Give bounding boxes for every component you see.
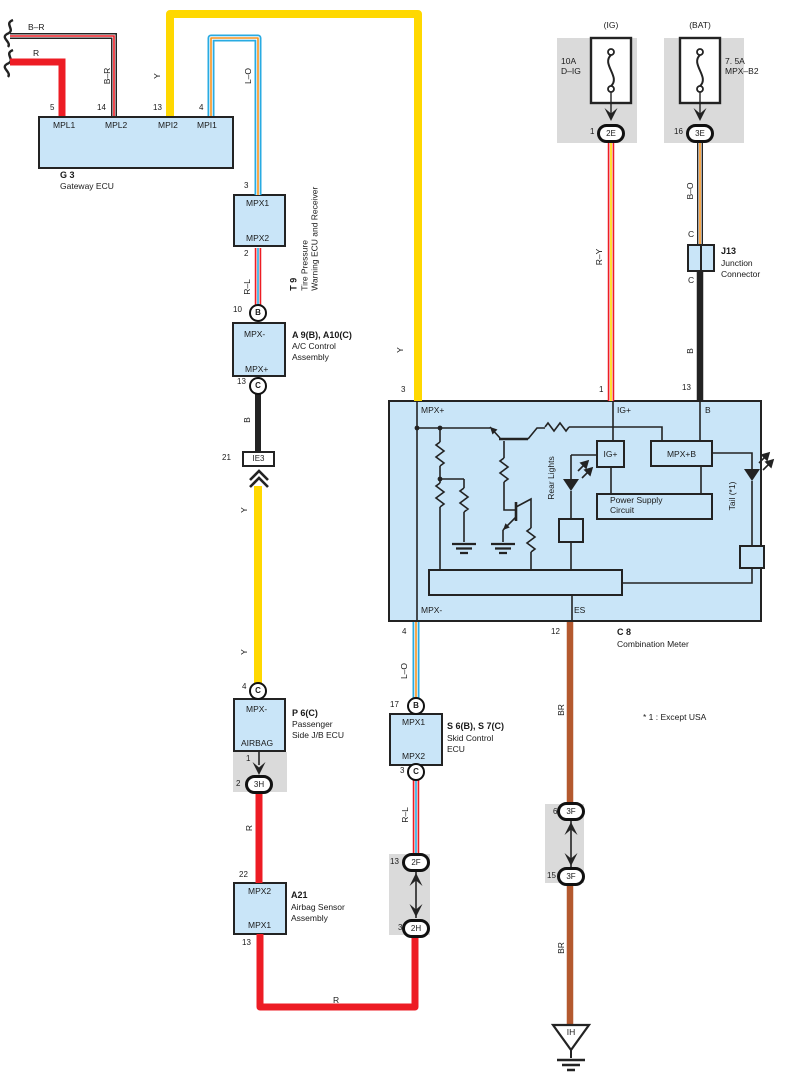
ac-desc-line2: Assembly: [292, 352, 329, 362]
fuse-ig-connector-2e: 2E: [597, 124, 625, 143]
wire-label-br-2: BR: [555, 908, 567, 988]
t9-pin3-number: 3: [244, 181, 248, 191]
fuse-bat-name: MPX–B2: [725, 66, 759, 76]
fuse-bat-header: (BAT): [675, 20, 725, 30]
t9-label-block: T 9 Tire Pressure Warning ECU and Receiv…: [288, 161, 320, 291]
wire-label-l-o-1: L–O: [242, 36, 254, 116]
wire-label-y-1: Y: [151, 36, 163, 116]
schematic-svg: [0, 0, 789, 1078]
g3-pin-mpl1: MPL1: [53, 120, 75, 130]
a21-id: A21: [291, 890, 308, 900]
g3-id: G 3: [60, 170, 75, 180]
p6-pin-mpx-minus: MPX-: [246, 704, 267, 714]
fuse-ig-pin-number: 1: [590, 127, 594, 137]
ie3-pin-number: 21: [222, 453, 231, 463]
a21-pin-mpx2: MPX2: [248, 886, 271, 896]
wire-label-r-bottom: R: [333, 995, 339, 1005]
c8-ig-box: IG+: [596, 440, 625, 468]
wire-label-r-l-1: R–L: [241, 247, 253, 327]
wire-label-l-o-2: L–O: [398, 631, 410, 711]
connector-2f: 2F: [402, 853, 430, 872]
t9-pin-mpx1: MPX1: [246, 198, 269, 208]
fuse-ig-rating: 10A: [561, 56, 576, 66]
c8-mpxb-box: MPX+B: [650, 440, 713, 467]
offpage-squiggles: [5, 20, 13, 77]
ac-pin-mpx-plus: MPX+: [245, 364, 268, 374]
fuse-ig-header: (IG): [586, 20, 636, 30]
connector-3f-bot: 3F: [557, 867, 585, 886]
j13-desc-line2: Connector: [721, 269, 760, 279]
wire-label-br-1: BR: [555, 670, 567, 750]
c8-pin-b: B: [705, 405, 711, 415]
g3-pin-mpi2: MPI2: [158, 120, 178, 130]
wire-label-r-y: R–Y: [593, 217, 605, 297]
wire-label-b-o: B–O: [684, 151, 696, 231]
wire-label-b-r-top: B–R: [28, 22, 45, 32]
a21-pin22-number: 22: [239, 870, 248, 880]
j13-c-bot: C: [688, 275, 694, 285]
wire-label-b-r-vert: B–R: [101, 36, 113, 116]
wiring-diagram-page: 5 14 13 4 MPL1 MPL2 MPI2 MPI1 G 3 Gatewa…: [0, 0, 789, 1078]
wire-label-r-vert: R: [243, 788, 255, 868]
fuse-bat-rating: 7. 5A: [725, 56, 745, 66]
p6-desc-line1: Passenger: [292, 719, 333, 729]
fuse-bat-connector-3e: 3E: [686, 124, 714, 143]
j13-desc-line1: Junction: [721, 258, 753, 268]
p6-jb-pin2-number: 2: [236, 779, 240, 789]
conn-3f-3f-arrows: [565, 821, 578, 867]
c8-id: C 8: [617, 627, 631, 637]
conn-3f-bot-number: 15: [547, 871, 556, 881]
conn-2f-number: 13: [390, 857, 399, 867]
wire-label-y-4: Y: [394, 310, 406, 390]
c8-tail-label: Tail (*1): [726, 456, 738, 536]
fuse-ig-symbol: [591, 38, 631, 121]
c8-pin1-number: 1: [599, 385, 603, 395]
c8-desc: Combination Meter: [617, 639, 689, 649]
fuse-ig-name: D–IG: [561, 66, 581, 76]
p6-connector-c: C: [249, 682, 267, 700]
c8-psc-line2: Circuit: [610, 505, 634, 515]
wire-label-r-top: R: [33, 48, 39, 58]
g3-desc: Gateway ECU: [60, 181, 114, 191]
a21-pin13-number: 13: [242, 938, 251, 948]
c8-driver-block: [428, 569, 623, 596]
wire-label-y-2: Y: [238, 470, 250, 550]
p6-jb-arrow: [253, 752, 266, 775]
skid-desc-line1: Skid Control: [447, 733, 493, 743]
t9-desc-line2: Warning ECU and Receiver: [309, 161, 320, 291]
g3-pin-mpi1: MPI1: [197, 120, 217, 130]
ie3-chevron: [250, 471, 268, 487]
wire-label-b-2: B: [684, 311, 696, 391]
j13-id: J13: [721, 246, 736, 256]
g3-pin4-number: 4: [199, 103, 203, 113]
fuse-bat-pin-number: 16: [674, 127, 683, 137]
g3-pin5-number: 5: [50, 103, 54, 113]
j13-divider: [700, 246, 702, 270]
c8-pin-ig: IG+: [617, 405, 631, 415]
connector-2h: 2H: [402, 919, 430, 938]
a21-desc-line1: Airbag Sensor: [291, 902, 345, 912]
c8-rear-lights-block: [558, 518, 584, 543]
p6-id: P 6(C): [292, 708, 318, 718]
g3-pin-mpl2: MPL2: [105, 120, 127, 130]
p6-jb-pin1-number: 1: [246, 754, 250, 764]
a21-desc-line2: Assembly: [291, 913, 328, 923]
skid-pin-mpx1: MPX1: [402, 717, 425, 727]
c8-pin-mpx-plus: MPX+: [421, 405, 444, 415]
note-except-usa: * 1 : Except USA: [643, 712, 706, 722]
t9-desc-line1: Tire Pressure: [299, 161, 310, 291]
connector-3f-top: 3F: [557, 802, 585, 821]
skid-pin-mpx2: MPX2: [402, 751, 425, 761]
c8-psc-line1: Power Supply: [610, 495, 662, 505]
wire-label-r-l-2: R–L: [399, 775, 411, 855]
t9-pin-mpx2: MPX2: [246, 233, 269, 243]
conn-2f-2h-arrows: [410, 872, 423, 918]
ac-desc-line1: A/C Control: [292, 341, 336, 351]
wire-label-y-3: Y: [238, 612, 250, 692]
c8-power-supply-box: Power Supply Circuit: [596, 493, 713, 520]
skid-desc-line2: ECU: [447, 744, 465, 754]
c8-pin-es: ES: [574, 605, 585, 615]
t9-id: T 9: [288, 161, 299, 291]
c8-pin-mpx-minus: MPX-: [421, 605, 442, 615]
fuse-bat-symbol: [680, 38, 720, 121]
c8-pin12-number: 12: [551, 627, 560, 637]
p6-pin-airbag: AIRBAG: [241, 738, 273, 748]
wire-label-b-1: B: [241, 380, 253, 460]
skid-id: S 6(B), S 7(C): [447, 721, 504, 731]
j13-connector-box: [687, 244, 715, 272]
ac-pin-mpx-minus: MPX-: [244, 329, 265, 339]
p6-desc-line2: Side J/B ECU: [292, 730, 344, 740]
a21-pin-mpx1: MPX1: [248, 920, 271, 930]
c8-tail-block: [739, 545, 765, 569]
ground-ih-label: IH: [561, 1027, 581, 1037]
c8-rear-lights-label: Rear Lights: [545, 438, 557, 518]
ac-id: A 9(B), A10(C): [292, 330, 352, 340]
